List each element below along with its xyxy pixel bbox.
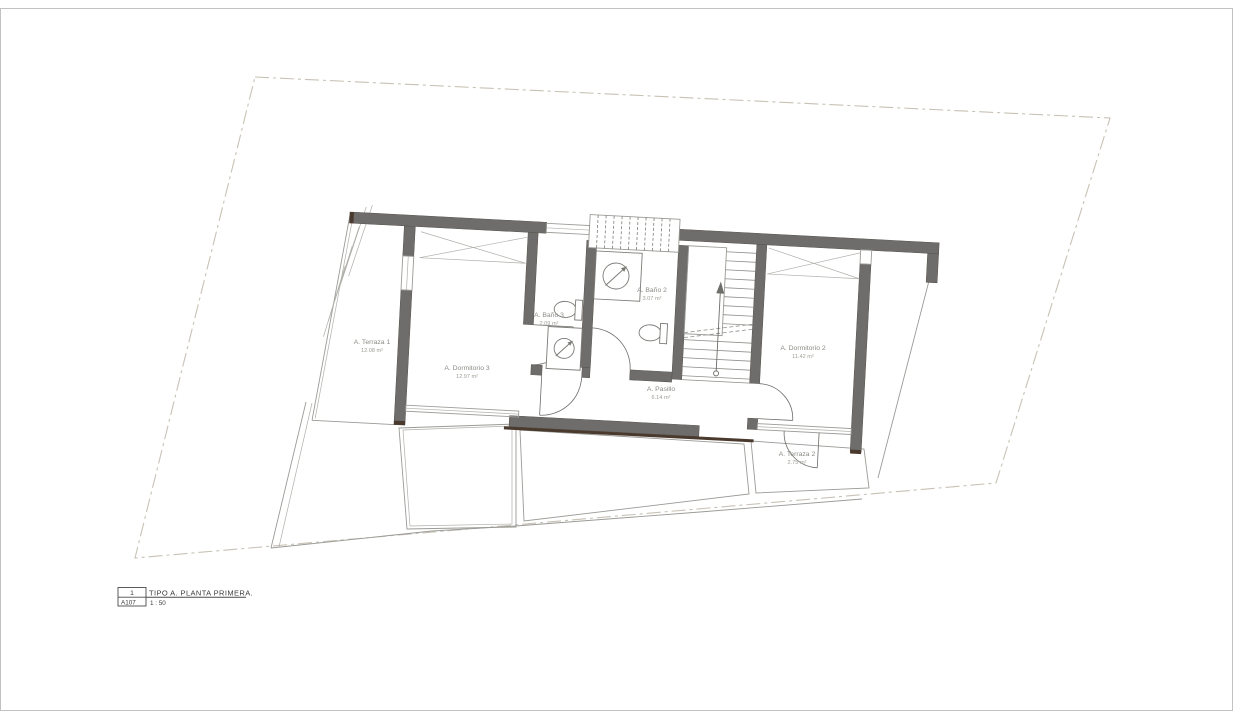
svg-text:A. Terraza 1: A. Terraza 1 (354, 339, 391, 346)
paper (0, 0, 1240, 720)
floor-plan-sheet: A. Terraza 1 12.08 m² A. Dormitorio 3 12… (0, 0, 1240, 720)
svg-text:A. Dormitorio 2: A. Dormitorio 2 (780, 345, 826, 352)
detail-number: 1 (130, 590, 134, 597)
svg-text:A. Terraza 2: A. Terraza 2 (779, 451, 816, 458)
svg-text:12.97 m²: 12.97 m² (456, 374, 478, 380)
svg-text:A. Pasillo: A. Pasillo (647, 386, 676, 393)
svg-text:2.09 m²: 2.09 m² (540, 321, 559, 327)
drawing-scale: 1 : 50 (150, 600, 166, 607)
skylight-hatch (588, 215, 680, 253)
shower-icon-bano-3 (546, 327, 582, 371)
svg-text:6.14 m²: 6.14 m² (652, 395, 671, 401)
svg-text:A. Baño 2: A. Baño 2 (637, 287, 667, 294)
svg-text:A. Dormitorio 3: A. Dormitorio 3 (444, 365, 490, 372)
svg-text:3.07 m²: 3.07 m² (643, 296, 662, 302)
shower-icon-bano-2 (594, 251, 642, 301)
svg-text:12.08 m²: 12.08 m² (361, 348, 383, 354)
drawing-title: TIPO A. PLANTA PRIMERA. (149, 588, 253, 597)
svg-text:2.75 m²: 2.75 m² (788, 460, 807, 466)
svg-text:11.42 m²: 11.42 m² (792, 354, 814, 360)
sheet-number: A107 (121, 600, 136, 607)
svg-text:A. Baño 3: A. Baño 3 (534, 312, 564, 319)
